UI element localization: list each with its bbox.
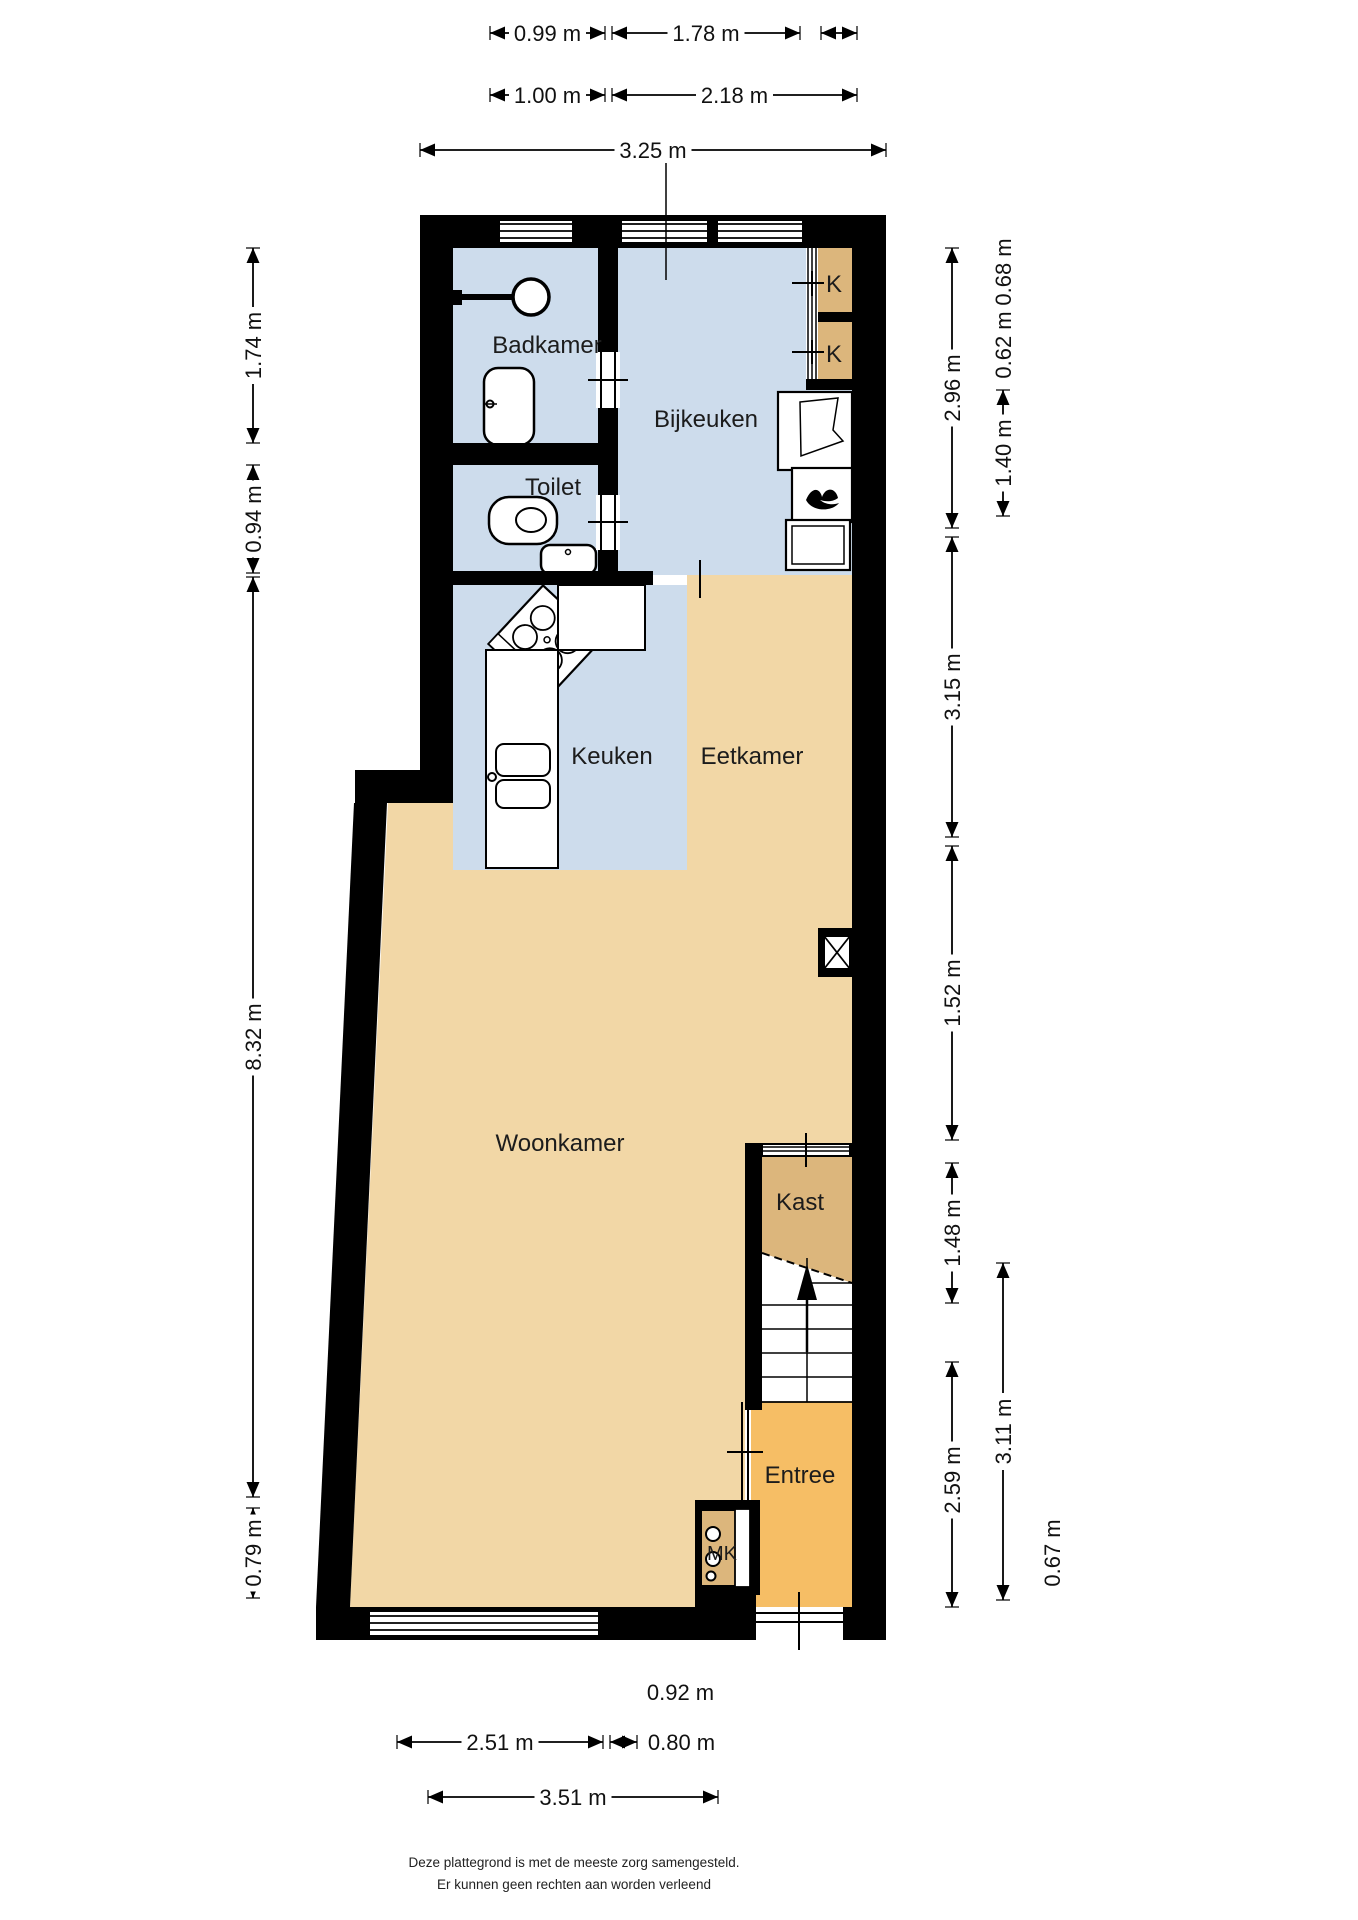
dimension-label-group: 8.32 m <box>240 999 266 1076</box>
dimension-label: 0.67 m <box>1040 1519 1065 1586</box>
dimension-label: 0.94 m <box>241 485 266 552</box>
dimension-top-a: 0.99 m <box>490 20 605 46</box>
bijkeuken-label: Bijkeuken <box>654 406 758 433</box>
toilet-label: Toilet <box>525 474 581 501</box>
dimension-arrow <box>997 1585 1010 1600</box>
dimension-arrow <box>612 27 627 40</box>
dimension-arrow <box>842 27 857 40</box>
wall-meterkast-base <box>695 1595 756 1607</box>
dimension-label: 2.59 m <box>940 1446 965 1513</box>
bath-sink-icon <box>484 368 534 445</box>
disclaimer-line-1: Deze plattegrond is met de meeste zorg s… <box>254 1852 894 1874</box>
dimension-label: 2.51 m <box>466 1730 533 1755</box>
dimension-label-group: 2.59 m <box>939 1442 965 1519</box>
dimension-arrow <box>946 1163 959 1178</box>
dimension-label-group: 0.68 m <box>990 234 1016 311</box>
wall-toilet-keuken <box>453 571 653 585</box>
dimension-label: 1.48 m <box>940 1199 965 1266</box>
dimension-arrow <box>997 390 1010 405</box>
entree-label: Entree <box>765 1462 836 1489</box>
dimension-right-a: 2.96 m <box>939 248 965 528</box>
keuken-label: Keuken <box>571 743 652 770</box>
dimension-arrow <box>946 846 959 861</box>
dimension-label-group: 1.52 m <box>939 955 965 1032</box>
entree-floor <box>751 1402 852 1607</box>
dimension-arrow <box>946 248 959 263</box>
dimension-label: 1.52 m <box>940 959 965 1026</box>
dimension-label: 0.79 m <box>241 1519 266 1586</box>
sink-bowl-1 <box>496 744 550 776</box>
hand-basin-icon <box>541 545 596 574</box>
window <box>500 221 572 242</box>
window <box>622 217 802 246</box>
dimension-left-a: 1.74 m <box>240 248 266 443</box>
dimension-bottom-d: 0.80 m <box>643 1729 720 1755</box>
dimension-label-group: 1.48 m <box>939 1195 965 1272</box>
dimension-arrow <box>420 144 435 157</box>
dimension-arrow <box>946 1362 959 1377</box>
toilet-bowl <box>516 508 546 532</box>
counter-top <box>558 585 645 650</box>
dimension-label-group: 2.96 m <box>939 350 965 427</box>
dimension-arrow <box>397 1736 412 1749</box>
meterkast-label: MK <box>707 1543 738 1565</box>
dimension-left-c: 8.32 m <box>240 577 266 1497</box>
toilet-icon <box>489 497 557 544</box>
dimension-label: 1.78 m <box>672 21 739 46</box>
dimension-label: 8.32 m <box>241 1003 266 1070</box>
dimension-bottom-c <box>610 1735 637 1749</box>
dimension-left-b: 0.94 m <box>240 465 266 573</box>
dimension-label-group: 0.94 m <box>240 481 266 558</box>
dimension-arrow <box>490 27 505 40</box>
dimension-right-e: 2.59 m <box>939 1362 965 1607</box>
wall-kast-left <box>745 1143 762 1410</box>
washer-icon <box>786 520 850 570</box>
dimension-arrow <box>612 89 627 102</box>
dimension-right-f: 0.68 m <box>990 234 1016 311</box>
dimension-label: 2.18 m <box>701 83 768 108</box>
wall-left-upper <box>420 215 453 773</box>
dimension-label: 3.15 m <box>940 653 965 720</box>
wall-right <box>852 215 886 1640</box>
dimension-arrow <box>842 89 857 102</box>
dimension-arrow <box>247 248 260 263</box>
dimension-label-group: 0.79 m <box>240 1515 266 1592</box>
dimension-label: 0.99 m <box>514 21 581 46</box>
wall-bottom-right-stub <box>843 1607 886 1640</box>
dimension-bottom-e: 3.51 m <box>428 1784 718 1810</box>
dimension-bottom-b: 2.51 m <box>397 1729 603 1755</box>
dimension-top-e: 2.18 m <box>612 82 857 108</box>
closet-k1-label: K <box>826 271 842 298</box>
dimension-arrow <box>997 501 1010 516</box>
dimension-right-b: 3.15 m <box>939 537 965 837</box>
shower-head <box>513 279 549 315</box>
dimension-label: 1.00 m <box>514 83 581 108</box>
dimension-right-c: 1.52 m <box>939 846 965 1140</box>
dimension-right-d: 1.48 m <box>939 1163 965 1303</box>
dimension-label-group: 0.62 m <box>990 307 1016 384</box>
dimension-arrow <box>946 1125 959 1140</box>
dimension-arrow <box>871 144 886 157</box>
woonkamer-label: Woonkamer <box>496 1130 625 1157</box>
dimension-arrow <box>590 89 605 102</box>
wall-step <box>355 770 453 803</box>
dimension-label: 1.74 m <box>241 312 266 379</box>
dimension-arrow <box>946 513 959 528</box>
dimension-label-group: 1.74 m <box>240 307 266 384</box>
sink-tap <box>488 773 496 781</box>
dimension-arrow <box>428 1791 443 1804</box>
dimension-label-group: 1.40 m <box>990 415 1016 492</box>
floorplan-drawing: Badkamer Toilet Bijkeuken Keuken Eetkame… <box>0 0 1358 1920</box>
dimension-arrow <box>490 89 505 102</box>
meterkast-door <box>735 1509 750 1587</box>
meter-icon <box>707 1572 716 1581</box>
fridge-icon <box>778 392 852 470</box>
woonkamer-window <box>370 1612 598 1635</box>
dimension-label-group: 3.11 m <box>990 1393 1016 1470</box>
dimension-arrow <box>247 558 260 573</box>
duct-icon <box>824 936 850 969</box>
appliance-box <box>792 468 852 522</box>
dimension-arrow <box>946 537 959 552</box>
dimension-right-g: 0.62 m <box>990 307 1016 384</box>
dimension-arrow <box>247 1482 260 1497</box>
dimension-label-group: 3.15 m <box>939 649 965 726</box>
sink-bowl-2 <box>496 780 550 808</box>
dimension-top-b: 1.78 m <box>612 20 800 46</box>
dimension-right-h: 1.40 m <box>990 390 1016 516</box>
appliance-box <box>786 520 850 570</box>
dimension-bottom-a: 0.92 m <box>642 1679 719 1705</box>
dimension-label: 2.96 m <box>940 354 965 421</box>
wall-badkamer-toilet <box>453 443 598 465</box>
dimension-label: 3.51 m <box>539 1785 606 1810</box>
wall-below-k2 <box>806 379 852 390</box>
dimension-arrow <box>946 822 959 837</box>
floorplan-page: Badkamer Toilet Bijkeuken Keuken Eetkame… <box>0 0 1358 1920</box>
dimension-arrow <box>247 577 260 592</box>
dimension-arrow <box>946 1288 959 1303</box>
dimension-label: 0.92 m <box>647 1680 714 1705</box>
dimension-label: 0.80 m <box>648 1730 715 1755</box>
dimension-arrow <box>590 27 605 40</box>
dimension-top-c <box>821 26 857 40</box>
closet-k2-label: K <box>826 341 842 368</box>
dimension-top-d: 1.00 m <box>490 82 605 108</box>
dimension-label-group: 0.67 m <box>1039 1515 1065 1592</box>
dimension-arrow <box>785 27 800 40</box>
dimension-right-j: 0.67 m <box>1039 1515 1065 1592</box>
dimension-label: 0.68 m <box>991 238 1016 305</box>
dimension-left-d: 0.79 m <box>240 1508 266 1598</box>
dimension-arrow <box>703 1791 718 1804</box>
dimension-right-i: 3.11 m <box>990 1263 1016 1600</box>
meter-icon <box>706 1527 720 1541</box>
dimension-arrow <box>247 465 260 480</box>
disclaimer: Deze plattegrond is met de meeste zorg s… <box>254 1852 894 1895</box>
dimension-arrow <box>997 1263 1010 1278</box>
badkamer-label: Badkamer <box>492 332 601 359</box>
disclaimer-line-2: Er kunnen geen rechten aan worden verlee… <box>254 1874 894 1896</box>
kast-label: Kast <box>776 1189 824 1216</box>
dimension-arrow <box>247 428 260 443</box>
dimension-label: 1.40 m <box>991 419 1016 486</box>
dimension-arrow <box>588 1736 603 1749</box>
dimension-label: 3.25 m <box>619 138 686 163</box>
boiler-icon <box>792 468 852 522</box>
dimension-top-f: 3.25 m <box>420 137 886 163</box>
dimension-label: 0.62 m <box>991 311 1016 378</box>
window-mullion <box>707 217 718 246</box>
appliance-box <box>778 392 852 470</box>
dimension-label: 3.11 m <box>991 1399 1016 1465</box>
dimension-arrow <box>946 1592 959 1607</box>
dimension-arrow <box>821 27 836 40</box>
dimension-arrow <box>622 1736 637 1749</box>
eetkamer-label: Eetkamer <box>701 743 804 770</box>
